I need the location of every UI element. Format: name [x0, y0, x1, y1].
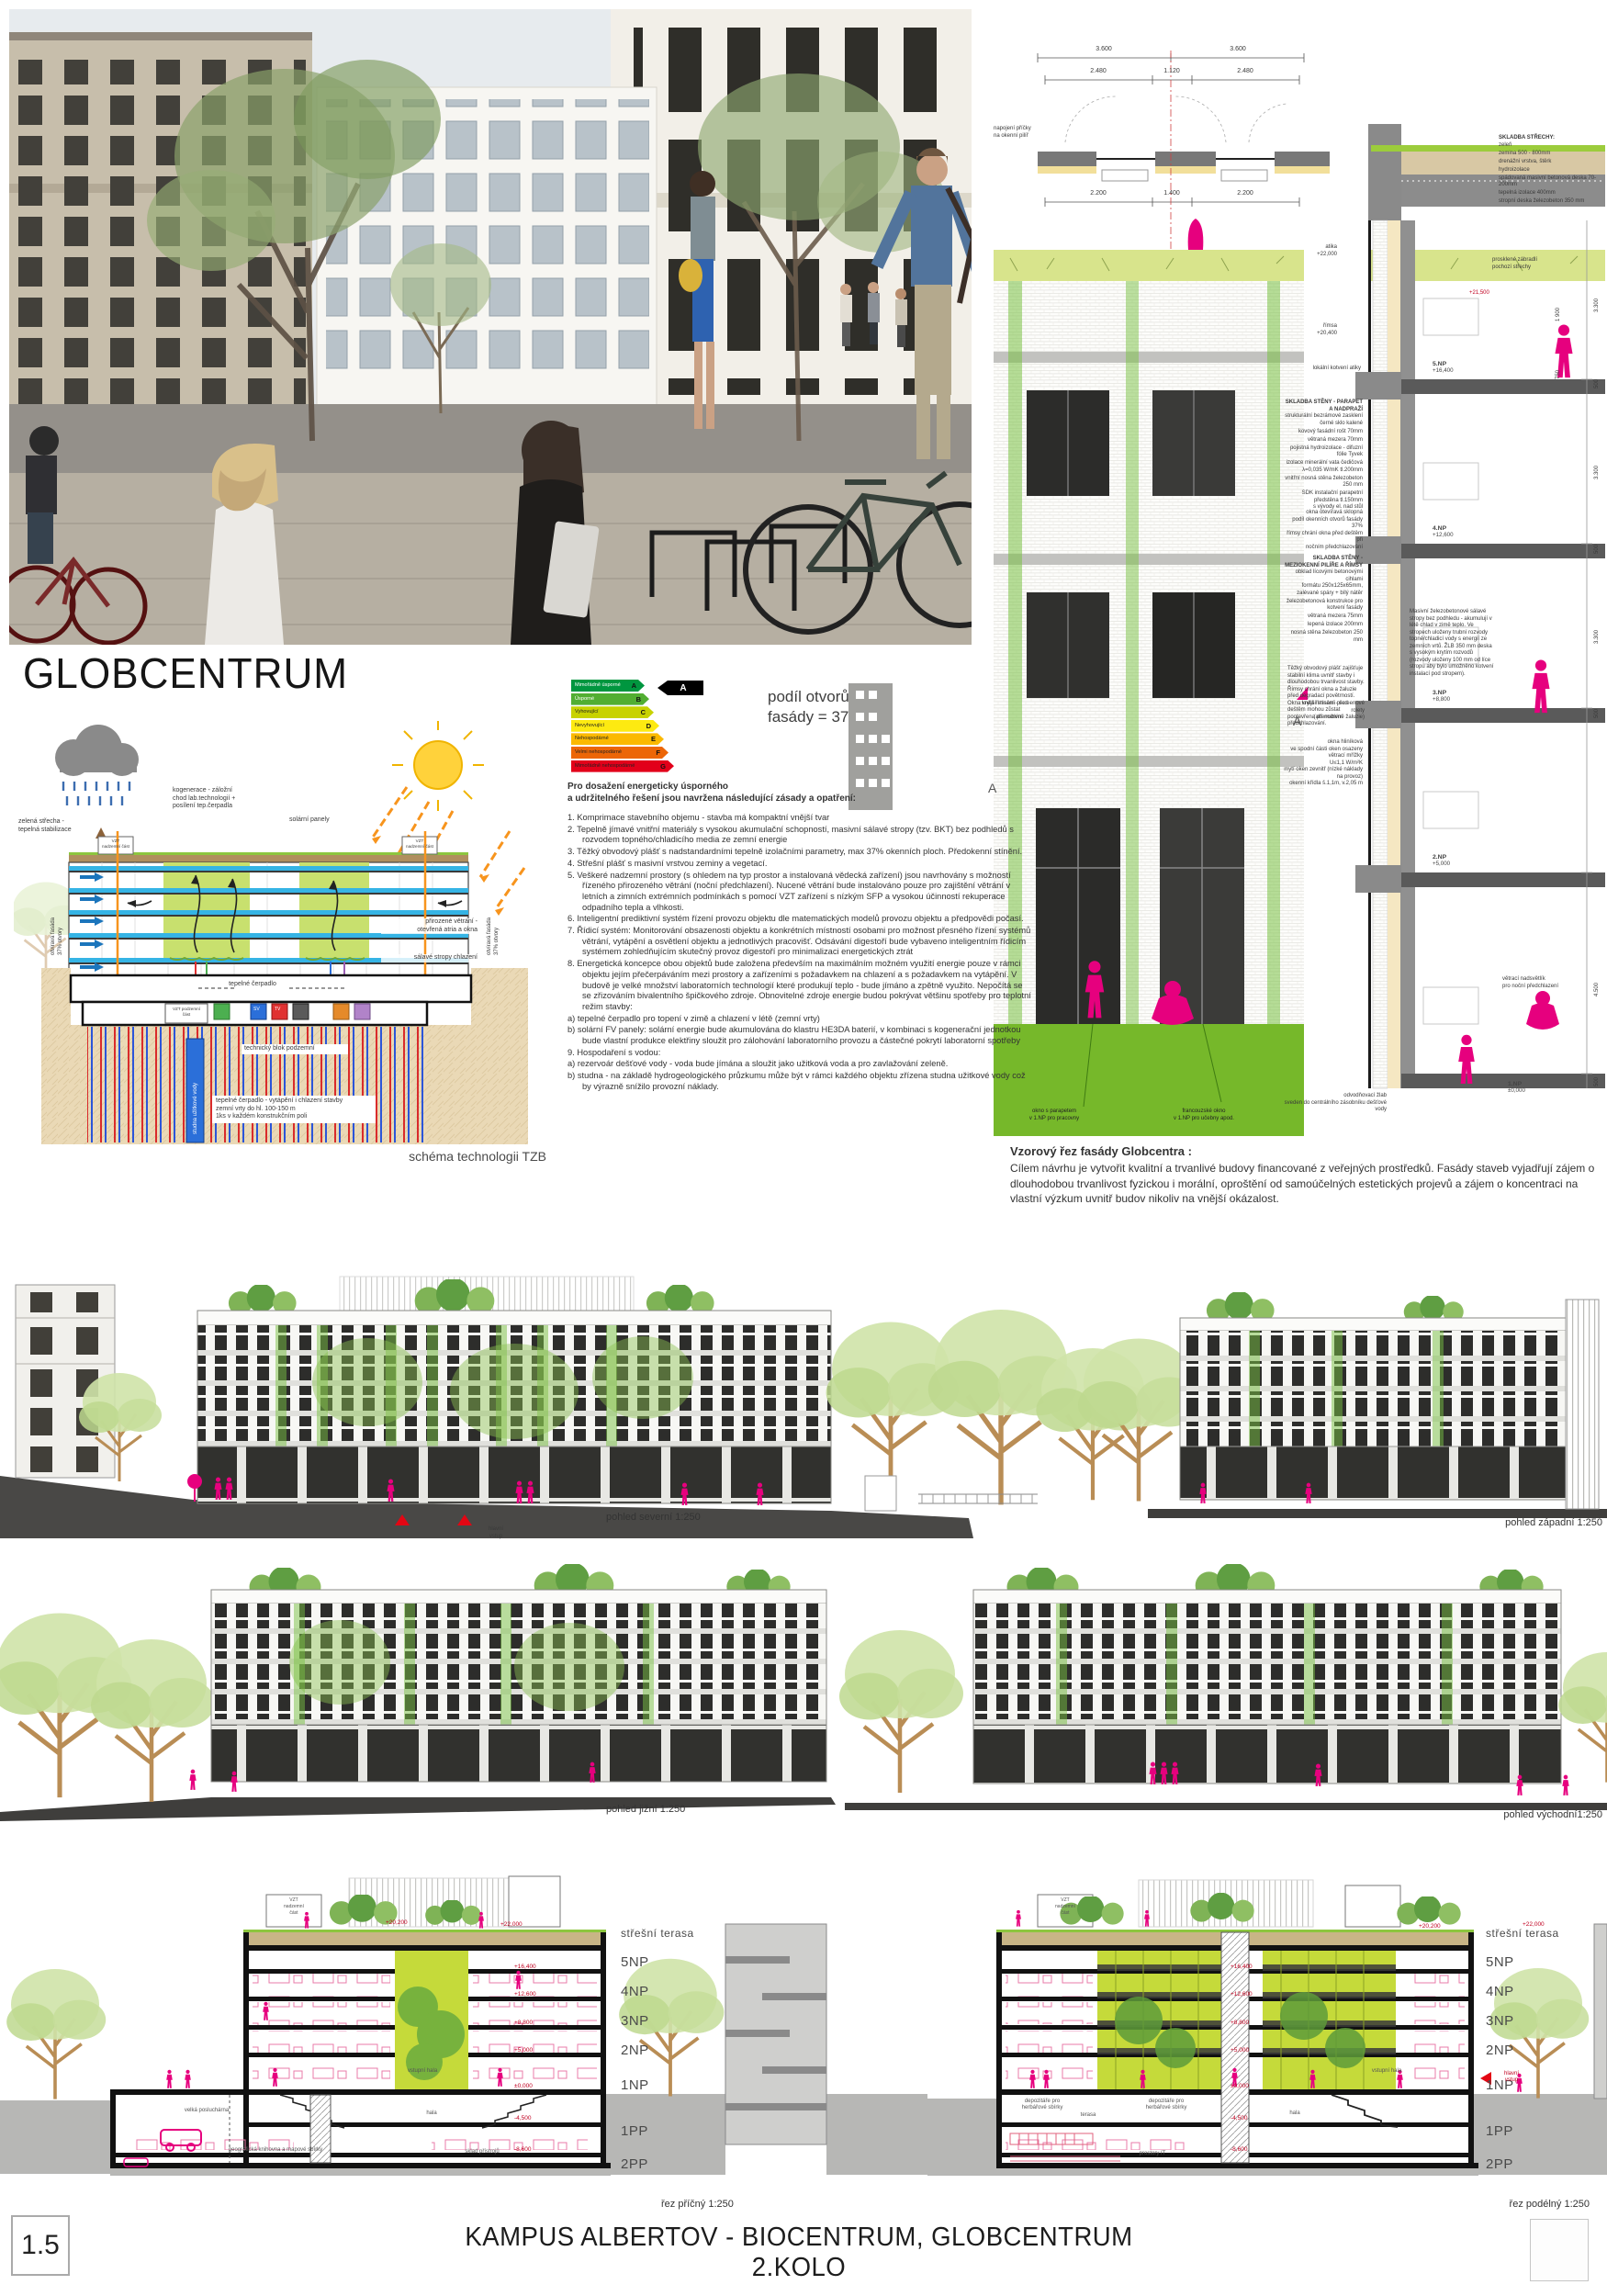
sheet-title-line2: 2.KOLO	[393, 2253, 1205, 2283]
floor-label: 2PP	[621, 2156, 648, 2172]
plan-dim: 3.600	[1201, 46, 1275, 54]
room-label: depozitáře pro herbářové sbírky	[1006, 2099, 1079, 2111]
wall1-layers: strukturální bezrámové zasklení černé sk…	[1284, 413, 1363, 512]
level-mark: ±0,000	[514, 2083, 533, 2089]
stamp-box	[1530, 2219, 1589, 2281]
room-label: hala	[1276, 2110, 1313, 2117]
north-west-elevations	[0, 1272, 1607, 1538]
vzt-roof-label-right: VZT nadzemní část	[1039, 1897, 1091, 1917]
floor-label: 3NP	[1486, 2013, 1514, 2029]
floor-label: 5NP	[621, 1954, 649, 1970]
tzb-boreholes-note: tepelné čerpadlo - vytápění i chlazení s…	[212, 1096, 376, 1123]
sample-elevation	[994, 281, 1304, 1136]
tree	[1558, 1652, 1607, 1783]
level-mark: -4,500	[514, 2115, 531, 2122]
tzb-tv-label: TV	[275, 1007, 280, 1012]
floor-label: 5NP	[1486, 1954, 1514, 1970]
east-elevation	[973, 1562, 1561, 1784]
roof-terrace-label-left: střešní terasa	[621, 1927, 694, 1940]
north-elevation-caption: pohled severní 1:250	[606, 1512, 790, 1523]
roof-terrace-label-right: střešní terasa	[1486, 1927, 1559, 1940]
wall1-title: SKLADBA STĚNY - PARAPET A NADPRAŽÍ	[1284, 400, 1363, 413]
plan-dim: 2.200	[1218, 190, 1273, 198]
entry-label-north: hlavní vstup	[478, 1526, 514, 1540]
tzb-techblock-label: technický blok podzemní	[242, 1044, 348, 1054]
tzb-facade-side-left: otvíravá fasáda 37% otvory	[51, 904, 64, 955]
parapet-note: prosklené zábradlí pochozí střechy	[1492, 257, 1556, 271]
principles-list: 1. Komprimace stavebního objemu - stavba…	[568, 813, 1031, 1093]
facade-detail-panel: 3.600 3.600 2.480 1.120 2.480 2.200 1.40…	[992, 23, 1607, 1139]
level-2np: 2.NP+5,000	[1433, 854, 1477, 867]
ground-note-2: francouzské okno v 1.NP pro učebny apod.	[1164, 1109, 1243, 1122]
level-mark: +20,200	[1419, 1923, 1441, 1930]
dim-small: 750	[1556, 370, 1563, 379]
tzb-facade-side-right: otvíravá fasáda 37% otvory	[487, 904, 500, 955]
tzb-heatpump-label: tepelné čerpadlo	[211, 981, 294, 989]
level-atika: atika +22,000	[1295, 244, 1337, 258]
level-mark: ±0,000	[1231, 2083, 1249, 2089]
floor-label: 2NP	[1486, 2043, 1514, 2058]
room-label: terasa	[1061, 2112, 1116, 2119]
tzb-vzt-top-label-1: VZT nadzemní část	[97, 838, 134, 849]
plan-walls	[1038, 152, 1330, 181]
dim: 3.300	[1594, 630, 1601, 644]
level-mark: +8,800	[1231, 2020, 1249, 2026]
floor-label: 4NP	[1486, 1984, 1514, 1999]
tzb-green-roof-label: zelená střecha - tepelná stabilizace	[18, 818, 99, 834]
sections-row	[0, 1869, 1607, 2204]
level-mark: +8,800	[514, 2020, 533, 2026]
tree	[839, 1630, 963, 1793]
dim: 500	[1594, 1077, 1601, 1086]
energy-label: Mimořádně úspornéAÚspornéBVyhovujícíCNev…	[571, 680, 755, 773]
pink-figure-4np	[1532, 660, 1549, 714]
principles-heading-2: a udržitelného řešení jsou navržena násl…	[568, 793, 1031, 805]
cross-section	[0, 1876, 927, 2176]
level-mark: +20,200	[386, 1919, 408, 1926]
roof-buildup-title: SKLADBA STŘECHY:	[1499, 135, 1607, 142]
cross-section-caption: řez příčný 1:250	[661, 2199, 826, 2210]
dim: 3.300	[1594, 298, 1601, 312]
level-rimsa: římsa +20,400	[1295, 323, 1337, 337]
dim: 3.300	[1594, 466, 1601, 479]
sheet-title-line1: KAMPUS ALBERTOV - BIOCENTRUM, GLOBCENTRU…	[393, 2223, 1205, 2253]
room-label: velká posluchárna	[165, 2108, 248, 2114]
dim-small: 1 900	[1556, 308, 1563, 321]
window-spec: okna hliníková ve spodní části oken osaz…	[1282, 739, 1363, 788]
presentation-board: GLOBCENTRUM	[0, 0, 1607, 2296]
sample-section-heading: Vzorový řez fasády Globcentra :	[1010, 1144, 1605, 1158]
sun-icon	[392, 721, 484, 811]
tzb-vzt-bottom-label: VZT podzemní část	[166, 1007, 207, 1017]
tzb-cogen-label: kogenerace - záložní chod lab.technologi…	[173, 787, 274, 811]
level-1np: 1.NP±0,000	[1508, 1081, 1552, 1094]
floor-label: 4NP	[621, 1984, 649, 1999]
vzt-roof-label-left: VZT nadzemní část	[268, 1897, 320, 1917]
dim: 500	[1594, 379, 1601, 388]
window-note: okna otevíravá sklopná podíl okenních ot…	[1284, 510, 1363, 551]
tzb-solar-label: solární panely	[289, 816, 363, 825]
level-value: +20,400	[1295, 331, 1337, 338]
level-mark: +5,000	[1231, 2047, 1249, 2054]
plan-dim: 2.480	[1218, 68, 1273, 76]
level-mark: +5,000	[514, 2047, 533, 2054]
tzb-well-label: studna užitkové vody	[193, 1042, 200, 1134]
level-mark: +22,000	[1523, 1921, 1545, 1928]
level-value: +22,000	[1295, 252, 1337, 259]
floor-label: 2NP	[621, 2043, 649, 2058]
tzb-diagram: zelená střecha - tepelná stabilizace kog…	[14, 721, 556, 1162]
tzb-caption: schéma technologii TZB	[399, 1149, 546, 1164]
tzb-sv-label: SV	[253, 1007, 260, 1012]
plan-dim: 3.600	[1067, 46, 1141, 54]
south-elevation	[211, 1562, 826, 1782]
vent-note: větrací nadsvětlík pro noční předchlazen…	[1502, 976, 1579, 990]
sample-section-body: Cílem návrhu je vytvořit kvalitní a trva…	[1010, 1161, 1605, 1207]
pink-figure-plan	[1188, 219, 1204, 250]
wall2-buildup: SKLADBA STĚNY - MEZIOKENNÍ PILÍŘE A ŘÍMS…	[1284, 556, 1363, 646]
slab-note: Masivní železobetonové sálavé stropy bez…	[1410, 609, 1494, 678]
sheet-number: 1.5	[21, 2230, 60, 2261]
site-photo: GLOBCENTRUM	[9, 9, 972, 645]
south-elevation-caption: pohled jižní 1:250	[606, 1804, 790, 1815]
tree	[91, 1639, 215, 1802]
room-label: vstupní hala	[395, 2068, 450, 2075]
wall2-title: SKLADBA STĚNY - MEZIOKENNÍ PILÍŘE A ŘÍMS…	[1284, 556, 1363, 569]
level-4np: 4.NP+12,600	[1433, 525, 1477, 538]
floor-label: 1PP	[621, 2123, 648, 2139]
sheet-number-box: 1.5	[11, 2215, 70, 2276]
west-elevation-caption: pohled západní 1:250	[1428, 1517, 1602, 1528]
south-east-elevations	[0, 1557, 1607, 1832]
roof-buildup: SKLADBA STŘECHY: zeleňzemina 500 - 800mm…	[1499, 135, 1607, 207]
floor-label: 1PP	[1486, 2123, 1513, 2139]
site-photo-rendering: GLOBCENTRUM	[9, 9, 972, 645]
roof-buildup-layers: zeleňzemina 500 - 800mmdrenážní vrstva, …	[1499, 142, 1607, 206]
level-name: římsa	[1295, 323, 1337, 331]
tzb-vzt-top-label-2: VZT nadzemní část	[401, 838, 438, 849]
level-mark: +16,400	[514, 1964, 536, 1970]
room-label: sklad přístrojů	[441, 2149, 523, 2155]
east-elevation-caption: pohled východní1:250	[1428, 1809, 1602, 1820]
sections-drawing	[0, 1869, 1607, 2204]
room-label: depozitáře pro herbářové sbírky	[1129, 2099, 1203, 2111]
room-label: geografická knihovna a mapové sbírky	[202, 2147, 349, 2154]
rain-cloud-icon	[55, 725, 139, 805]
west-elevation	[1180, 1291, 1599, 1509]
pink-figure-2np-sitting	[1526, 991, 1559, 1030]
ground-note-1: okno s parapetem v 1.NP pro pracovny	[1017, 1109, 1091, 1122]
long-section-caption: řez podélný 1:250	[1423, 2199, 1590, 2210]
level-mark: +12,600	[1231, 1991, 1253, 1998]
room-label: prostory IT	[1116, 2151, 1189, 2157]
tzb-slabs-label: sálavé stropy chlazení	[381, 954, 478, 962]
plan-dim: 2.200	[1071, 190, 1126, 198]
sample-section-text: Vzorový řez fasády Globcentra : Cílem ná…	[1010, 1144, 1605, 1207]
tzb-natvent-label: přirozené větrání - otevřená atria a okn…	[381, 918, 478, 934]
room-label: vstupní hala	[1359, 2068, 1414, 2075]
level-mark: +22,000	[500, 1921, 523, 1928]
dim: 500	[1594, 545, 1601, 554]
elevations-row-1	[0, 1272, 1607, 1538]
room-label: hala	[413, 2110, 450, 2117]
terrace-level: +21,500	[1469, 290, 1489, 298]
principles-heading-1: Pro dosažení energeticky úsporného	[568, 782, 1031, 793]
anchor-note: lokální kotvení atiky	[1295, 366, 1361, 373]
plaza-paving	[9, 473, 972, 645]
project-title: GLOBCENTRUM	[23, 648, 348, 698]
elevations-row-2	[0, 1557, 1607, 1832]
plan-dim: 1.400	[1144, 190, 1199, 198]
level-name: atika	[1295, 244, 1337, 252]
level-3np: 3.NP+8,800	[1433, 690, 1477, 703]
plan-note: napojení příčky na okenní pilíř	[994, 126, 1067, 140]
background-people	[840, 282, 907, 347]
dim: 500	[1594, 709, 1601, 718]
floor-label: 2PP	[1486, 2156, 1513, 2172]
drain-note: odvodňovací žlab sveden do centrálního z…	[1278, 1093, 1387, 1114]
section-marker-a: A	[1293, 714, 1301, 728]
vzt-roof-boxes	[98, 837, 437, 854]
wall2-layers: obklad lícovými betonovými cihlami formá…	[1284, 569, 1363, 644]
foreground-girl-blonde	[205, 444, 284, 645]
level-5np: 5.NP+16,400	[1433, 361, 1477, 374]
level-mark: -4,500	[1231, 2115, 1247, 2122]
energy-principles: Pro dosažení energeticky úsporného a udr…	[568, 782, 1031, 1094]
energy-label-rows: Mimořádně úspornéAÚspornéBVyhovujícíCNev…	[571, 680, 755, 772]
level-mark: +12,600	[514, 1991, 536, 1998]
floor-label: 1NP	[621, 2077, 649, 2093]
street	[9, 404, 972, 476]
level-mark: -8,600	[1231, 2146, 1247, 2153]
street-furniture	[865, 1476, 1038, 1511]
level-mark: +16,400	[1231, 1964, 1253, 1970]
north-elevation	[197, 1277, 831, 1503]
sheet-title: KAMPUS ALBERTOV - BIOCENTRUM, GLOBCENTRU…	[393, 2223, 1205, 2283]
wall1-buildup: SKLADBA STĚNY - PARAPET A NADPRAŽÍ struk…	[1284, 400, 1363, 512]
plan-dim: 1.120	[1144, 68, 1199, 76]
dim: 4.500	[1594, 983, 1601, 996]
floor-label: 3NP	[621, 2013, 649, 2029]
plan-dim: 2.480	[1071, 68, 1126, 76]
tree	[6, 1969, 106, 2099]
entry-label-section: hlavní vstup	[1495, 2071, 1528, 2084]
